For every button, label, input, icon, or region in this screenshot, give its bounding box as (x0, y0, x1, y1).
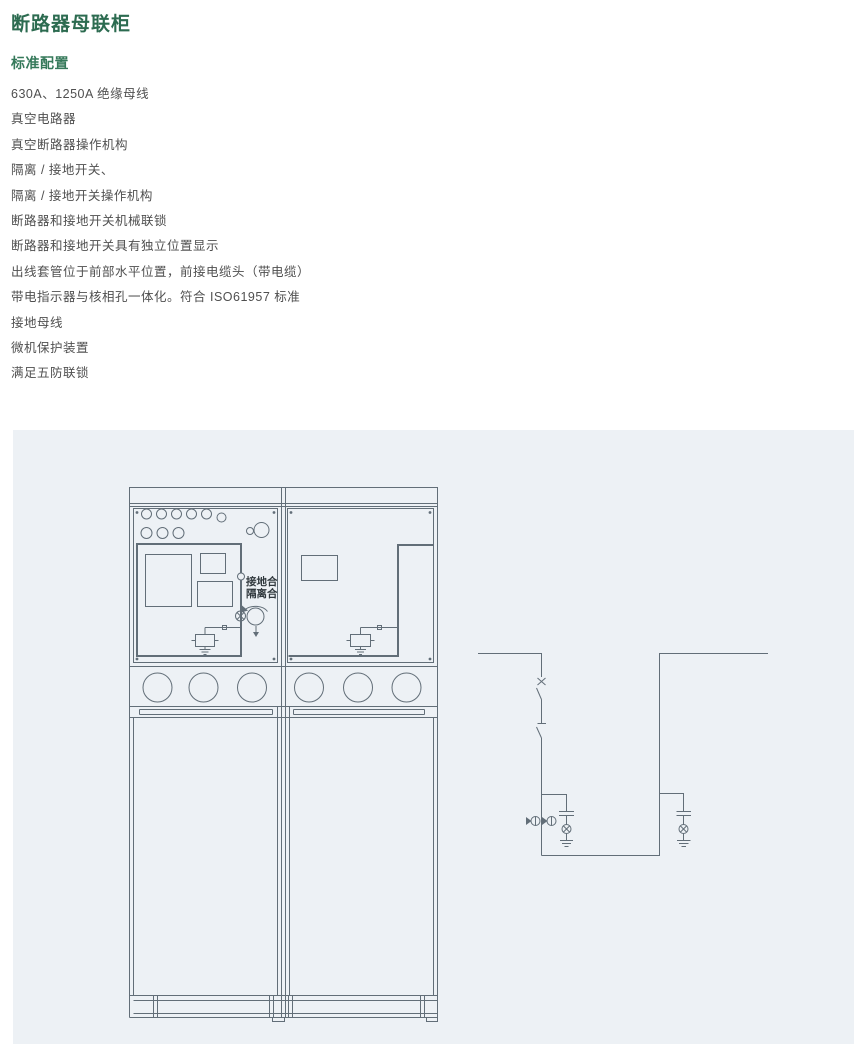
left-branch (542, 795, 567, 812)
keyhole-and-port (247, 523, 270, 538)
cabinet-doors (130, 718, 438, 996)
cable-bushing (238, 673, 267, 702)
right-branch (660, 794, 684, 812)
right-operation-panel (288, 509, 434, 663)
cabinet-diagram: 接地合 隔离合 (13, 430, 854, 1044)
cable-bushing (344, 673, 373, 702)
ground-symbol (677, 841, 691, 847)
feature-item: 630A、1250A 绝缘母线 (11, 82, 310, 107)
left-busbar (478, 654, 542, 678)
cable-bushing (295, 673, 324, 702)
feature-item: 满足五防联锁 (11, 361, 310, 386)
label-isolation-closed: 隔离合 (246, 587, 278, 600)
feature-item: 微机保护装置 (11, 336, 310, 361)
label-ground-closed: 接地合 (246, 575, 278, 588)
section-heading-standard-configuration: 标准配置 (11, 53, 69, 73)
voltage-indicator-icon (542, 817, 556, 826)
right-mimic-device (347, 626, 398, 655)
circuit-breaker-symbol (537, 678, 546, 700)
technical-diagram-panel: 接地合 隔离合 (13, 430, 854, 1044)
viewing-window (146, 555, 192, 607)
ground-symbol (200, 647, 211, 655)
cable-bushing-section (130, 667, 438, 718)
feature-item: 真空电路器 (11, 107, 310, 132)
page-title: 断路器母联柜 (11, 9, 131, 36)
voltage-indicator-icon (526, 817, 540, 826)
feature-item: 接地母线 (11, 311, 310, 336)
cabinet-roof (130, 488, 438, 507)
feature-item: 隔离 / 接地开关、 (11, 158, 310, 183)
cabinet-front-view: 接地合 隔离合 (130, 488, 438, 1022)
indicator-lamp-symbol (562, 825, 571, 834)
cabinet-foot (273, 1018, 285, 1022)
feature-item: 带电指示器与核相孔一体化。符合 ISO61957 标准 (11, 285, 310, 310)
small-window (201, 554, 226, 574)
rotation-arrow-arc (245, 606, 268, 611)
cabinet-foot (427, 1018, 438, 1022)
single-line-diagram (478, 654, 768, 856)
indicator-holes (141, 509, 226, 539)
cable-bushing (189, 673, 218, 702)
left-mimic-device (192, 626, 241, 655)
capacitor-symbol (559, 812, 574, 816)
medium-window (198, 582, 233, 607)
feature-item: 出线套管位于前部水平位置，前接电缆头（带电缆） (11, 260, 310, 285)
capacitor-symbol (677, 812, 692, 816)
cabinet-base (130, 996, 438, 1022)
cable-bushing (143, 673, 172, 702)
cable-bushing (392, 673, 421, 702)
rotation-arrowhead (242, 606, 249, 613)
frame-port (238, 573, 245, 580)
right-mimic-frame (289, 545, 434, 656)
feature-item: 断路器和接地开关具有独立位置显示 (11, 234, 310, 259)
bus-tie-connection (542, 654, 769, 856)
disconnector-symbol (537, 724, 547, 739)
ground-symbol (560, 841, 573, 847)
feature-list: 630A、1250A 绝缘母线 真空电路器 真空断路器操作机构 隔离 / 接地开… (11, 82, 310, 387)
indicator-lamp-symbol (679, 825, 688, 834)
left-operation-panel: 接地合 隔离合 (134, 509, 278, 663)
down-arrowhead (253, 632, 259, 637)
feature-item: 隔离 / 接地开关操作机构 (11, 184, 310, 209)
feature-item: 断路器和接地开关机械联锁 (11, 209, 310, 234)
viewing-window (302, 556, 338, 581)
ground-symbol (355, 647, 366, 655)
feature-item: 真空断路器操作机构 (11, 133, 310, 158)
